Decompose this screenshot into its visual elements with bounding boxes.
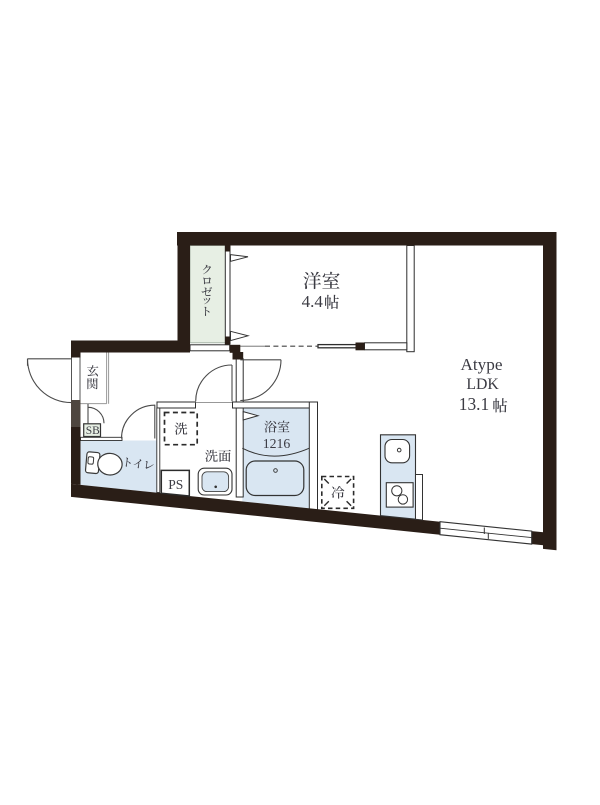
- svg-text:SB: SB: [86, 425, 100, 437]
- svg-text:1216: 1216: [263, 436, 291, 451]
- svg-text:13.1: 13.1: [459, 394, 489, 414]
- svg-text:Atype: Atype: [460, 355, 502, 374]
- svg-text:LDK: LDK: [466, 376, 499, 393]
- svg-text:PS: PS: [168, 477, 183, 492]
- svg-text:4.4: 4.4: [302, 292, 324, 311]
